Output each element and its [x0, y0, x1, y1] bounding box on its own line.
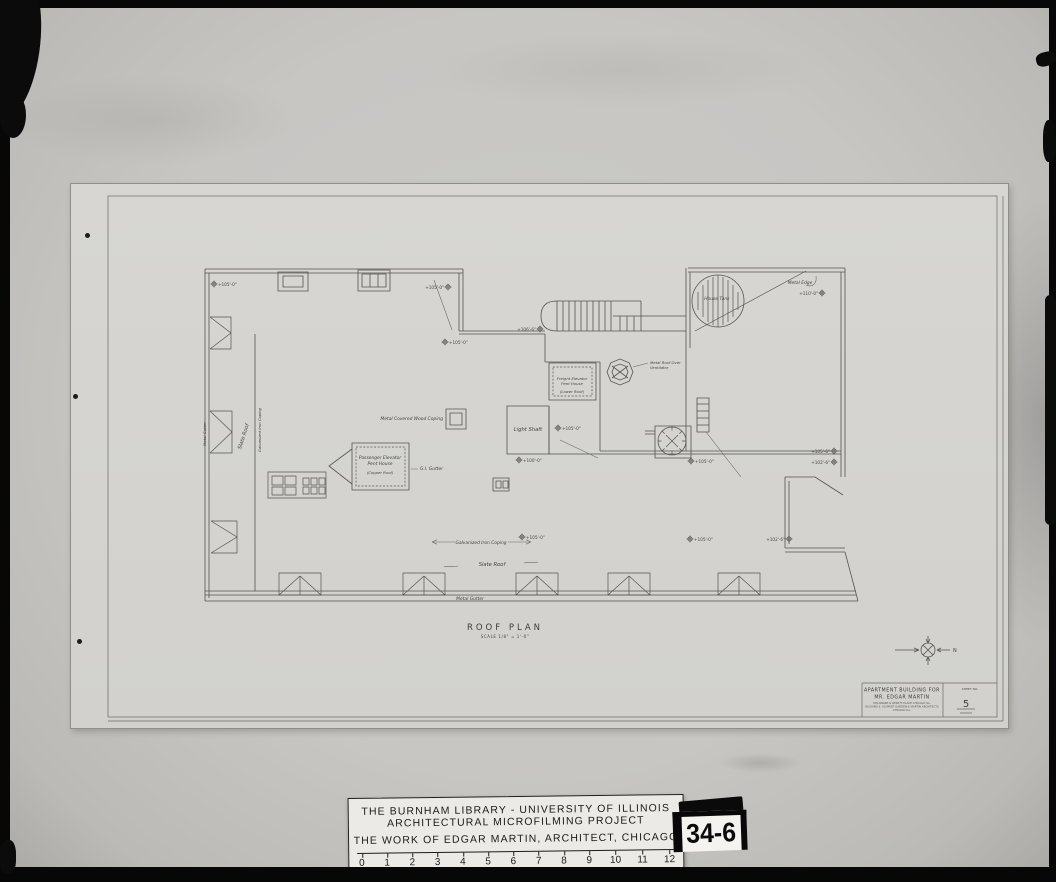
elevation-marker: +105'-0" — [442, 339, 468, 346]
film-blemish — [0, 92, 26, 138]
plan-scale-note: SCALE 1/8" = 1'-0" — [481, 634, 530, 639]
freight-penthouse-label: Pent House — [561, 381, 583, 386]
elevation-marker: +102'-6" — [811, 459, 837, 466]
elevation-marker: +105'-0" — [555, 425, 581, 432]
slate-roof-label: Slate Roof — [479, 562, 507, 568]
elevation-marker: +105'-0" — [211, 281, 237, 288]
ruler-tick: 5 — [484, 852, 493, 867]
ruler-tick: 10 — [610, 851, 621, 866]
elevation-marker: +105'-0" — [425, 284, 451, 291]
galvanized-coping-left-label: Galvanized Iron Coping — [257, 407, 262, 452]
metal-gutter-label: Metal Gutter — [456, 596, 485, 602]
caption-line-3: THE WORK OF EDGAR MARTIN, ARCHITECT, CHI… — [349, 831, 683, 847]
plan-linework — [205, 268, 950, 665]
film-blemish — [0, 840, 16, 874]
svg-text:+102'-6": +102'-6" — [811, 460, 830, 465]
title-block-firm-city: CHICAGO ILL. — [893, 708, 911, 712]
freight-penthouse-label: (Lower Roof) — [560, 389, 585, 394]
plan-title: ROOF PLAN — [467, 623, 543, 633]
film-blemish — [1045, 295, 1056, 525]
elevation-marker: +105'-0" — [519, 534, 545, 541]
photo-frame-edge — [0, 0, 1056, 8]
caption-card: THE BURNHAM LIBRARY - UNIVERSITY OF ILLI… — [348, 794, 685, 874]
svg-text:+106'-6": +106'-6" — [517, 327, 536, 332]
svg-text:+105'-0": +105'-0" — [449, 340, 468, 345]
svg-text:+105'-0": +105'-0" — [218, 282, 237, 287]
passenger-penthouse-label: Pent House — [367, 461, 392, 467]
film-blemish — [1043, 120, 1056, 162]
title-block-client: MR. EDGAR MARTIN — [874, 695, 929, 701]
ruler-tick: 8 — [559, 851, 568, 866]
passenger-penthouse-label: Passenger Elevator — [359, 455, 402, 461]
sheet-no-label: SHEET NO. — [962, 687, 978, 691]
slate-roof-left-label: Slate Roof — [237, 422, 251, 450]
elevation-marker: +105'-0" — [688, 458, 714, 465]
roof-plan-drawing: House Tank Metal Edge Freight Elevator P… — [0, 0, 1056, 882]
plan-annotations: House Tank Metal Edge Freight Elevator P… — [202, 280, 957, 654]
elevation-markers: +105'-0"+105'-0"+105'-0"+106'-6"+110'-0"… — [211, 281, 838, 543]
light-shaft-label: Light Shaft — [514, 427, 543, 433]
elevation-marker: +110'-0" — [799, 290, 825, 297]
frame-number: 34-6 — [686, 817, 737, 850]
metal-edge-label: Metal Edge — [788, 280, 813, 286]
title-block: APARTMENT BUILDING FOR MR. EDGAR MARTIN … — [864, 687, 978, 712]
frame-number-tag: 34-6 — [672, 810, 747, 853]
passenger-penthouse-label: (Copper Roof) — [367, 470, 394, 475]
sheet-no-value: 5 — [963, 699, 969, 710]
svg-text:+105'-0": +105'-0" — [694, 537, 713, 542]
svg-text:+105'-6": +105'-6" — [811, 449, 830, 454]
photo-frame-edge — [0, 867, 1056, 882]
svg-text:+100'-0": +100'-0" — [523, 458, 542, 463]
ruler-tick: 7 — [534, 852, 543, 867]
galvanized-coping-label: Galvanized Iron Coping — [455, 540, 506, 546]
elevation-marker: +100'-0" — [516, 457, 542, 464]
elevation-marker: +105'-6" — [811, 448, 837, 455]
svg-text:+105'-0": +105'-0" — [425, 285, 444, 290]
ruler-tick: 12 — [664, 850, 675, 865]
svg-text:+102'-6": +102'-6" — [766, 537, 785, 542]
metal-gutter-left-label: Metal Gutter — [202, 422, 207, 446]
ruler-tick: 4 — [458, 853, 467, 868]
svg-text:+105'-0": +105'-0" — [526, 535, 545, 540]
coping-note-label: Metal Covered Wood Coping — [381, 416, 444, 422]
svg-text:+110'-0": +110'-0" — [799, 291, 818, 296]
ruler-tick: 3 — [433, 853, 442, 868]
gi-gutter-label: G.I. Gutter — [420, 466, 444, 472]
title-block-project: APARTMENT BUILDING FOR — [864, 688, 940, 694]
north-label: N — [953, 648, 957, 654]
ruler-tick: 11 — [637, 850, 648, 865]
elevation-marker: +106'-6" — [517, 326, 543, 333]
svg-text:+105'-0": +105'-0" — [695, 459, 714, 464]
elevation-marker: +102'-6" — [766, 536, 792, 543]
ruler-tick: 6 — [509, 852, 518, 867]
sheet-border-lines — [108, 196, 1003, 721]
elevation-marker: +105'-0" — [687, 536, 713, 543]
svg-text:+105'-0": +105'-0" — [562, 426, 581, 431]
ventilator-label: Ventilator — [650, 365, 669, 370]
house-tank-label: House Tank — [704, 296, 730, 302]
ruler-tick: 9 — [585, 851, 594, 866]
microfilm-photo: House Tank Metal Edge Freight Elevator P… — [0, 0, 1056, 882]
